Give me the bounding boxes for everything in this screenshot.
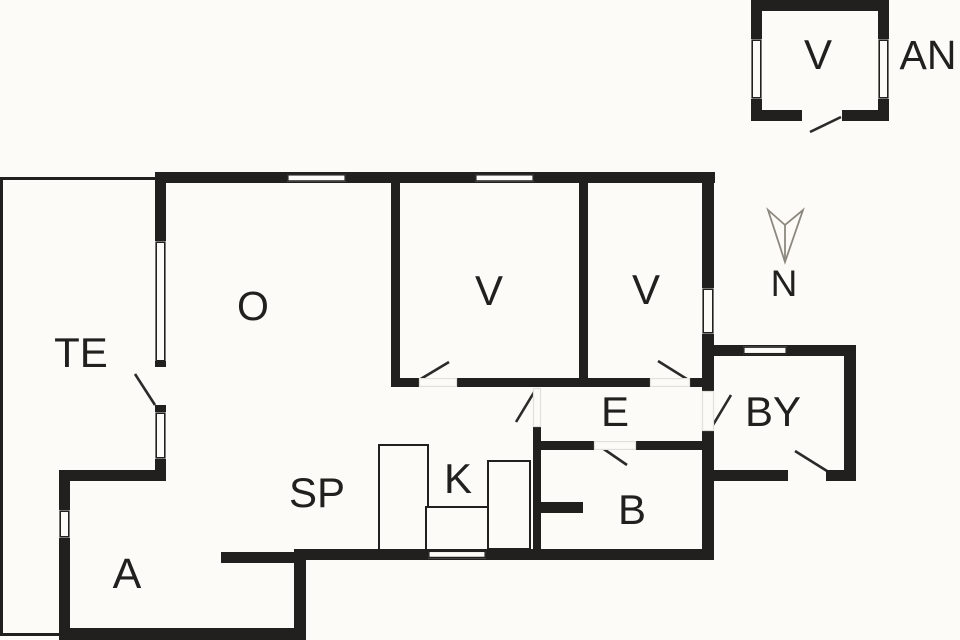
svg-text:TE: TE	[54, 329, 108, 376]
svg-text:E: E	[601, 388, 629, 435]
svg-text:A: A	[113, 550, 142, 598]
svg-text:V: V	[804, 31, 832, 78]
svg-text:AN: AN	[900, 32, 957, 78]
svg-text:B: B	[618, 486, 646, 533]
svg-text:O: O	[237, 283, 269, 329]
svg-text:V: V	[632, 266, 660, 313]
svg-text:SP: SP	[289, 469, 345, 516]
svg-text:V: V	[475, 267, 503, 314]
svg-text:K: K	[444, 455, 472, 502]
svg-text:N: N	[771, 263, 798, 304]
svg-text:BY: BY	[745, 388, 801, 435]
